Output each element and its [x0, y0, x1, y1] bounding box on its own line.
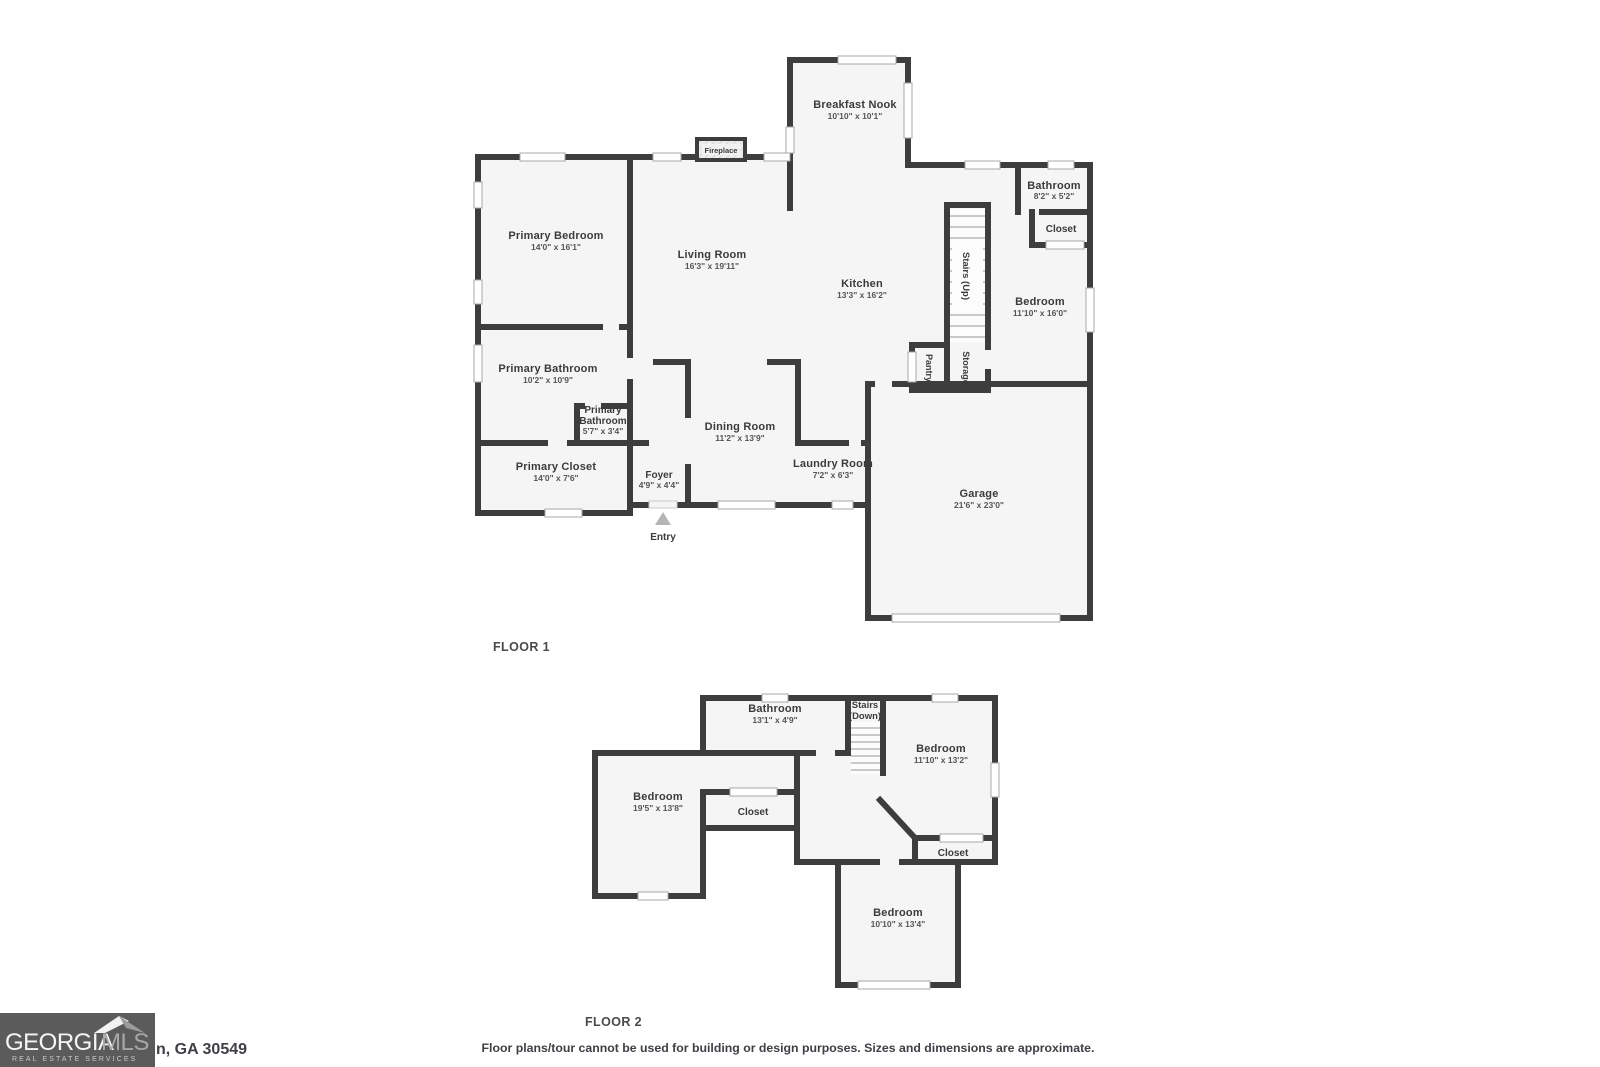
room-dims-primary-bedroom: 14'0" x 16'1"	[531, 242, 581, 252]
storage-label: Storage	[961, 351, 971, 385]
room-dims-primary-closet: 14'0" x 7'6"	[533, 473, 578, 483]
floor-plan-canvas: Fireplace Entry Breakfast Nook 10'10" x …	[0, 0, 1600, 1067]
floor-2-label: FLOOR 2	[585, 1015, 642, 1029]
room-dims-primary-bathroom-small: 5'7" x 3'4"	[583, 426, 623, 436]
logo-brand-part2: MLS	[101, 1029, 149, 1056]
room-label-primary-bathroom-small-1: Primary	[584, 405, 622, 416]
room-dims-bedroom-left-f2: 19'5" x 13'8"	[633, 803, 683, 813]
stairs-down-label-1: Stairs	[852, 700, 878, 711]
room-label-closet-right-f2: Closet	[938, 848, 969, 859]
room-label-primary-bedroom: Primary Bedroom	[508, 230, 603, 242]
stairs-up-label: Stairs (Up)	[960, 252, 971, 300]
room-label-living-room: Living Room	[678, 249, 747, 261]
room-dims-bedroom-bottom-f2: 10'10" x 13'4"	[871, 919, 926, 929]
room-dims-laundry-room: 7'2" x 6'3"	[813, 470, 853, 480]
room-dims-primary-bathroom: 10'2" x 10'9"	[523, 375, 573, 385]
room-label-closet-left-f2: Closet	[738, 807, 769, 818]
room-label-breakfast-nook: Breakfast Nook	[813, 99, 897, 111]
room-dims-kitchen: 13'3" x 16'2"	[837, 290, 887, 300]
room-label-closet-f1: Closet	[1046, 224, 1077, 235]
stairs-down-label-2: (Down)	[849, 711, 881, 722]
room-label-dining-room: Dining Room	[705, 421, 776, 433]
room-label-bedroom-left-f2: Bedroom	[633, 791, 683, 803]
georgia-mls-logo: GEORGIA MLS REAL ESTATE SERVICES	[0, 1013, 155, 1067]
room-dims-garage: 21'6" x 23'0"	[954, 500, 1004, 510]
room-label-garage: Garage	[959, 488, 998, 500]
room-label-laundry-room: Laundry Room	[793, 458, 873, 470]
disclaimer-text: Floor plans/tour cannot be used for buil…	[482, 1041, 1095, 1055]
room-label-kitchen: Kitchen	[841, 278, 883, 290]
fireplace: Fireplace	[697, 139, 745, 160]
room-dims-dining-room: 11'2" x 13'9"	[715, 433, 764, 443]
room-dims-bathroom-f2: 13'1" x 4'9"	[752, 715, 797, 725]
floor-plan-page: Fireplace Entry Breakfast Nook 10'10" x …	[0, 0, 1600, 1067]
room-dims-living-room: 16'3" x 19'11"	[685, 261, 739, 271]
pantry-label: Pantry	[924, 354, 934, 382]
logo-brand-part1: GEORGIA	[5, 1029, 114, 1056]
room-dims-foyer: 4'9" x 4'4"	[639, 480, 679, 490]
entry-marker: Entry	[649, 501, 677, 543]
room-dims-bedroom-f1: 11'10" x 16'0"	[1013, 308, 1067, 318]
floor-1-footprint	[478, 60, 1090, 618]
room-label-primary-closet: Primary Closet	[516, 461, 597, 473]
room-dims-breakfast-nook: 10'10" x 10'1"	[828, 111, 883, 121]
room-dims-bedroom-right-f2: 11'10" x 13'2"	[914, 755, 968, 765]
room-dims-bathroom-f1: 8'2" x 5'2"	[1034, 191, 1074, 201]
room-label-bedroom-bottom-f2: Bedroom	[873, 907, 923, 919]
floor-1-plan: Fireplace Entry Breakfast Nook 10'10" x …	[474, 56, 1094, 654]
fireplace-label: Fireplace	[705, 146, 738, 155]
room-label-bathroom-f2: Bathroom	[748, 703, 802, 715]
footer: n, GA 30549 Floor plans/tour cannot be u…	[0, 1013, 1094, 1067]
room-label-primary-bathroom: Primary Bathroom	[498, 363, 597, 375]
stairs-down-well	[851, 722, 880, 774]
logo-tagline: REAL ESTATE SERVICES	[12, 1056, 137, 1063]
floor-1-label: FLOOR 1	[493, 640, 550, 654]
room-label-bedroom-f1: Bedroom	[1015, 296, 1065, 308]
entry-label: Entry	[650, 532, 676, 543]
room-label-bedroom-right-f2: Bedroom	[916, 743, 966, 755]
stairs-down-treads	[851, 728, 880, 770]
entry-arrow-icon	[655, 512, 671, 525]
address-text: n, GA 30549	[156, 1041, 247, 1058]
floor-2-plan: Bathroom 13'1" x 4'9" Stairs (Down) Bedr…	[585, 694, 999, 1029]
